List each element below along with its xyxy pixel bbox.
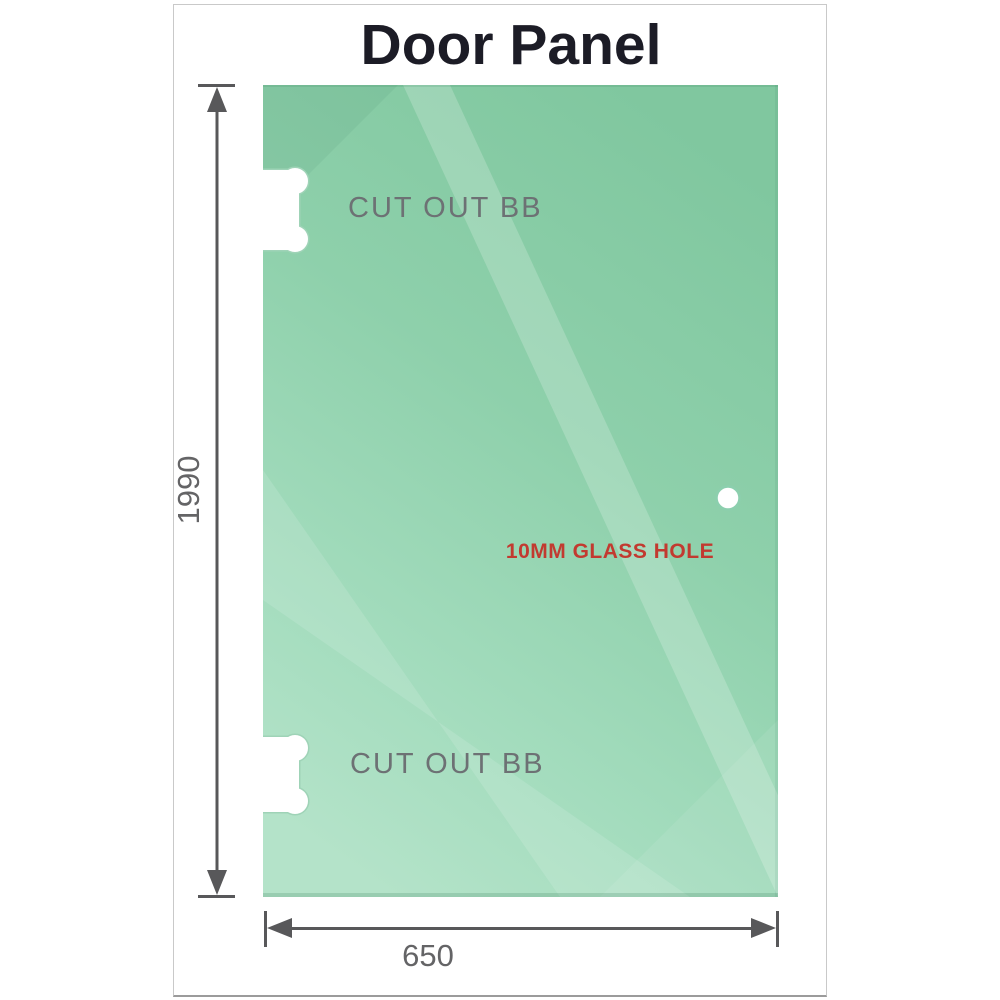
hinge-cutout-bottom: [252, 735, 308, 814]
arrow-right-icon: [751, 918, 776, 938]
width-dimension: 650: [266, 911, 778, 973]
glass-hole-label: 10MM GLASS HOLE: [506, 540, 714, 563]
height-dimension-label: 1990: [171, 456, 206, 525]
cutout-top-label: CUT OUT BB: [348, 192, 543, 224]
hinge-cutout-top: [252, 168, 308, 252]
cutout-bottom-label: CUT OUT BB: [350, 748, 545, 780]
arrow-down-icon: [207, 870, 227, 895]
arrow-up-icon: [207, 87, 227, 112]
arrow-left-icon: [267, 918, 292, 938]
height-dimension: 1990: [171, 86, 235, 897]
door-panel-diagram: CUT OUT BB CUT OUT BB 10MM GLASS HOLE 19…: [0, 0, 1000, 1000]
glass-hole: [717, 487, 740, 510]
width-dimension-label: 650: [402, 938, 454, 973]
